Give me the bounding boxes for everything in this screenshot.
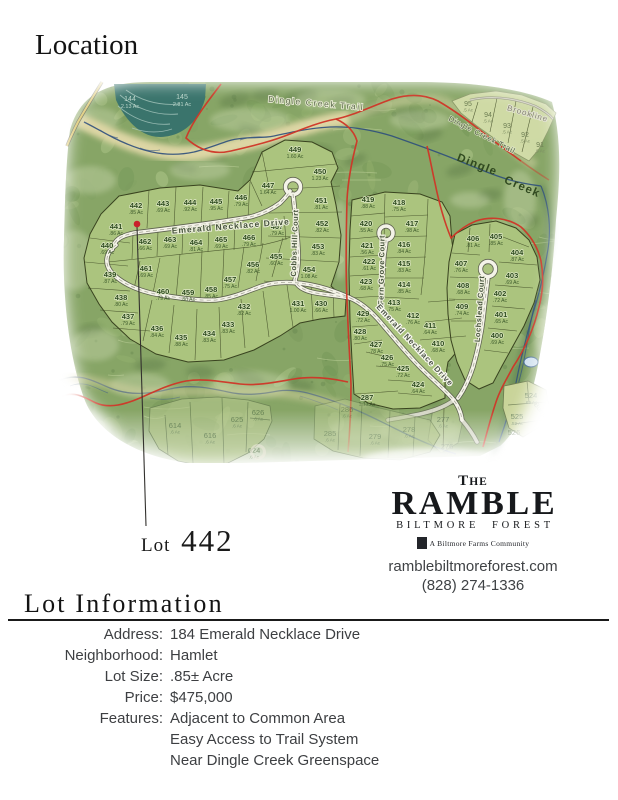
svg-text:423: 423 [360, 277, 373, 286]
svg-text:.79 Ac: .79 Ac [121, 321, 135, 327]
svg-text:434: 434 [203, 329, 216, 338]
svg-text:.69 Ac: .69 Ac [163, 244, 177, 250]
svg-text:.79 Ac: .79 Ac [242, 242, 256, 248]
svg-text:.5 Ac: .5 Ac [463, 108, 474, 113]
svg-text:.72 Ac: .72 Ac [356, 318, 370, 324]
svg-text:2.13 Ac: 2.13 Ac [121, 104, 140, 110]
svg-text:.69 Ac: .69 Ac [156, 208, 170, 214]
svg-text:.55 Ac: .55 Ac [359, 228, 373, 234]
svg-text:463: 463 [164, 235, 177, 244]
svg-text:421: 421 [361, 241, 374, 250]
svg-text:.69 Ac: .69 Ac [505, 280, 519, 286]
svg-text:438: 438 [115, 293, 128, 302]
svg-text:1.60 Ac: 1.60 Ac [287, 154, 304, 160]
svg-text:462: 462 [139, 237, 152, 246]
svg-text:419: 419 [362, 195, 375, 204]
svg-text:.79 Ac: .79 Ac [156, 296, 170, 302]
svg-text:.82 Ac: .82 Ac [246, 269, 260, 275]
svg-text:449: 449 [289, 145, 302, 154]
svg-text:443: 443 [157, 199, 170, 208]
svg-text:466: 466 [243, 233, 256, 242]
svg-text:433: 433 [222, 320, 235, 329]
svg-text:.82 Ac: .82 Ac [315, 228, 329, 234]
svg-text:465: 465 [215, 235, 228, 244]
svg-text:454: 454 [303, 265, 316, 274]
svg-text:.75 Ac: .75 Ac [392, 207, 406, 213]
svg-text:460: 460 [157, 287, 170, 296]
svg-text:.69 Ac: .69 Ac [214, 244, 228, 250]
svg-text:422: 422 [363, 257, 376, 266]
svg-text:.6 Ac: .6 Ac [325, 438, 336, 443]
svg-text:.80 Ac: .80 Ac [114, 302, 128, 308]
svg-text:2.81 Ac: 2.81 Ac [173, 102, 192, 108]
svg-text:.68 Ac: .68 Ac [456, 290, 470, 296]
svg-text:.79 Ac: .79 Ac [234, 202, 248, 208]
svg-text:.72 Ac: .72 Ac [493, 298, 507, 304]
svg-text:287: 287 [361, 393, 374, 402]
svg-text:145: 145 [176, 94, 188, 101]
svg-text:.88 Ac: .88 Ac [361, 204, 375, 210]
svg-text:411: 411 [424, 321, 436, 330]
svg-text:.81 Ac: .81 Ac [466, 243, 480, 249]
svg-text:452: 452 [316, 219, 329, 228]
svg-text:524: 524 [525, 391, 538, 400]
svg-text:1.08 Ac: 1.08 Ac [301, 274, 318, 280]
svg-text:.68 Ac: .68 Ac [431, 348, 445, 354]
svg-text:455: 455 [270, 252, 283, 261]
svg-text:458: 458 [205, 285, 218, 294]
svg-text:424: 424 [412, 380, 425, 389]
svg-text:.83 Ac: .83 Ac [397, 268, 411, 274]
svg-text:.5 Ac: .5 Ac [502, 130, 513, 135]
svg-text:.74 Ac: .74 Ac [455, 311, 469, 317]
svg-text:.6 Ac: .6 Ac [170, 430, 181, 435]
svg-text:.83 Ac: .83 Ac [311, 251, 325, 257]
svg-text:418: 418 [393, 198, 406, 207]
svg-text:.64 Ac: .64 Ac [411, 389, 425, 395]
svg-text:457: 457 [224, 275, 237, 284]
svg-text:1.64 Ac: 1.64 Ac [260, 190, 277, 196]
svg-text:144: 144 [124, 96, 136, 103]
svg-text:441: 441 [110, 222, 123, 231]
svg-text:.81 Ac: .81 Ac [189, 247, 203, 253]
svg-text:.66 Ac: .66 Ac [314, 308, 328, 314]
svg-text:.79 Ac: .79 Ac [270, 231, 284, 237]
svg-text:426: 426 [381, 353, 394, 362]
svg-text:.87 Ac: .87 Ac [103, 279, 117, 285]
svg-text:446: 446 [235, 193, 248, 202]
svg-text:417: 417 [406, 219, 419, 228]
svg-text:.6 Ac: .6 Ac [342, 414, 353, 419]
svg-text:400: 400 [491, 331, 504, 340]
svg-text:526: 526 [508, 428, 521, 437]
svg-text:444: 444 [184, 198, 197, 207]
svg-text:.60 Ac: .60 Ac [269, 261, 283, 267]
svg-text:.75 Ac: .75 Ac [380, 362, 394, 368]
svg-text:401: 401 [495, 310, 508, 319]
svg-text:430: 430 [315, 299, 328, 308]
svg-text:1.00 Ac: 1.00 Ac [290, 308, 307, 314]
svg-text:408: 408 [457, 281, 470, 290]
svg-text:413: 413 [388, 298, 401, 307]
svg-text:425: 425 [397, 364, 410, 373]
svg-text:Fern Grove Court: Fern Grove Court [376, 235, 386, 305]
svg-text:.6 Ac: .6 Ac [232, 424, 243, 429]
svg-text:.95 Ac: .95 Ac [209, 206, 223, 212]
svg-text:451: 451 [315, 196, 328, 205]
svg-text:.6 Ac: .6 Ac [205, 440, 216, 445]
svg-text:.72 Ac: .72 Ac [396, 373, 410, 379]
svg-text:429: 429 [357, 309, 370, 318]
svg-text:461: 461 [140, 264, 153, 273]
svg-text:403: 403 [506, 271, 519, 280]
svg-text:.98 Ac: .98 Ac [405, 228, 419, 234]
svg-text:.85 Ac: .85 Ac [397, 289, 411, 295]
svg-text:405: 405 [490, 232, 503, 241]
svg-text:.65 Ac: .65 Ac [494, 319, 508, 325]
svg-text:.5 Ac: .5 Ac [520, 139, 531, 144]
svg-text:412: 412 [407, 311, 420, 320]
svg-text:.56 Ac: .56 Ac [360, 250, 374, 256]
svg-text:.80 Ac: .80 Ac [353, 336, 367, 342]
svg-text:420: 420 [360, 219, 373, 228]
svg-text:.69 Ac: .69 Ac [139, 273, 153, 279]
svg-text:.83 Ac: .83 Ac [202, 338, 216, 344]
svg-text:436: 436 [151, 324, 164, 333]
svg-text:.6 Ac: .6 Ac [370, 441, 381, 446]
svg-text:456: 456 [247, 260, 260, 269]
svg-text:.61 Ac: .61 Ac [362, 266, 376, 272]
svg-text:402: 402 [494, 289, 507, 298]
svg-text:.75 Ac: .75 Ac [223, 284, 237, 290]
svg-text:.80 Ac: .80 Ac [181, 297, 195, 303]
svg-text:.81 Ac: .81 Ac [314, 205, 328, 211]
svg-text:.85 Ac: .85 Ac [204, 294, 218, 300]
svg-text:.85 Ac: .85 Ac [489, 241, 503, 247]
svg-text:406: 406 [467, 234, 480, 243]
svg-text:409: 409 [456, 302, 469, 311]
svg-text:.69 Ac: .69 Ac [100, 250, 114, 256]
svg-text:427: 427 [370, 340, 383, 349]
svg-text:404: 404 [511, 248, 524, 257]
svg-text:1.23 Ac: 1.23 Ac [312, 176, 329, 182]
svg-text:.6 Ac: .6 Ac [253, 417, 264, 422]
svg-text:435: 435 [175, 333, 188, 342]
svg-text:.82 Ac: .82 Ac [237, 311, 251, 317]
svg-text:415: 415 [398, 259, 411, 268]
svg-text:.69 Ac: .69 Ac [490, 340, 504, 346]
svg-text:442: 442 [130, 201, 143, 210]
svg-text:432: 432 [238, 302, 251, 311]
svg-text:445: 445 [210, 197, 223, 206]
svg-text:.85 Ac: .85 Ac [129, 210, 143, 216]
svg-text:.52 Ac: .52 Ac [511, 421, 524, 426]
svg-text:447: 447 [262, 181, 275, 190]
svg-text:.84 Ac: .84 Ac [397, 249, 411, 255]
svg-text:407: 407 [455, 259, 468, 268]
svg-text:.68 Ac: .68 Ac [359, 286, 373, 292]
svg-text:439: 439 [104, 270, 117, 279]
svg-text:.5 Ac: .5 Ac [535, 149, 546, 154]
svg-text:410: 410 [432, 339, 445, 348]
svg-text:.87 Ac: .87 Ac [510, 257, 524, 263]
svg-text:440: 440 [101, 241, 114, 250]
svg-text:.6 Ac: .6 Ac [404, 434, 415, 439]
svg-text:450: 450 [314, 167, 327, 176]
svg-text:416: 416 [398, 240, 411, 249]
svg-text:459: 459 [182, 288, 195, 297]
svg-text:525: 525 [511, 412, 524, 421]
svg-text:453: 453 [312, 242, 325, 251]
svg-text:.66 Ac: .66 Ac [138, 246, 152, 252]
svg-text:.5 Ac: .5 Ac [483, 119, 494, 124]
svg-text:.88 Ac: .88 Ac [174, 342, 188, 348]
svg-text:414: 414 [398, 280, 411, 289]
svg-text:.76 Ac: .76 Ac [406, 320, 420, 326]
svg-text:.84 Ac: .84 Ac [150, 333, 164, 339]
svg-text:428: 428 [354, 327, 367, 336]
svg-text:.76 Ac: .76 Ac [454, 268, 468, 274]
svg-text:431: 431 [292, 299, 305, 308]
svg-text:.92 Ac: .92 Ac [183, 207, 197, 213]
svg-text:.83 Ac: .83 Ac [221, 329, 235, 335]
svg-text:.64 Ac: .64 Ac [423, 330, 437, 336]
svg-text:464: 464 [190, 238, 203, 247]
svg-text:.86 Ac: .86 Ac [109, 231, 123, 237]
svg-text:437: 437 [122, 312, 135, 321]
